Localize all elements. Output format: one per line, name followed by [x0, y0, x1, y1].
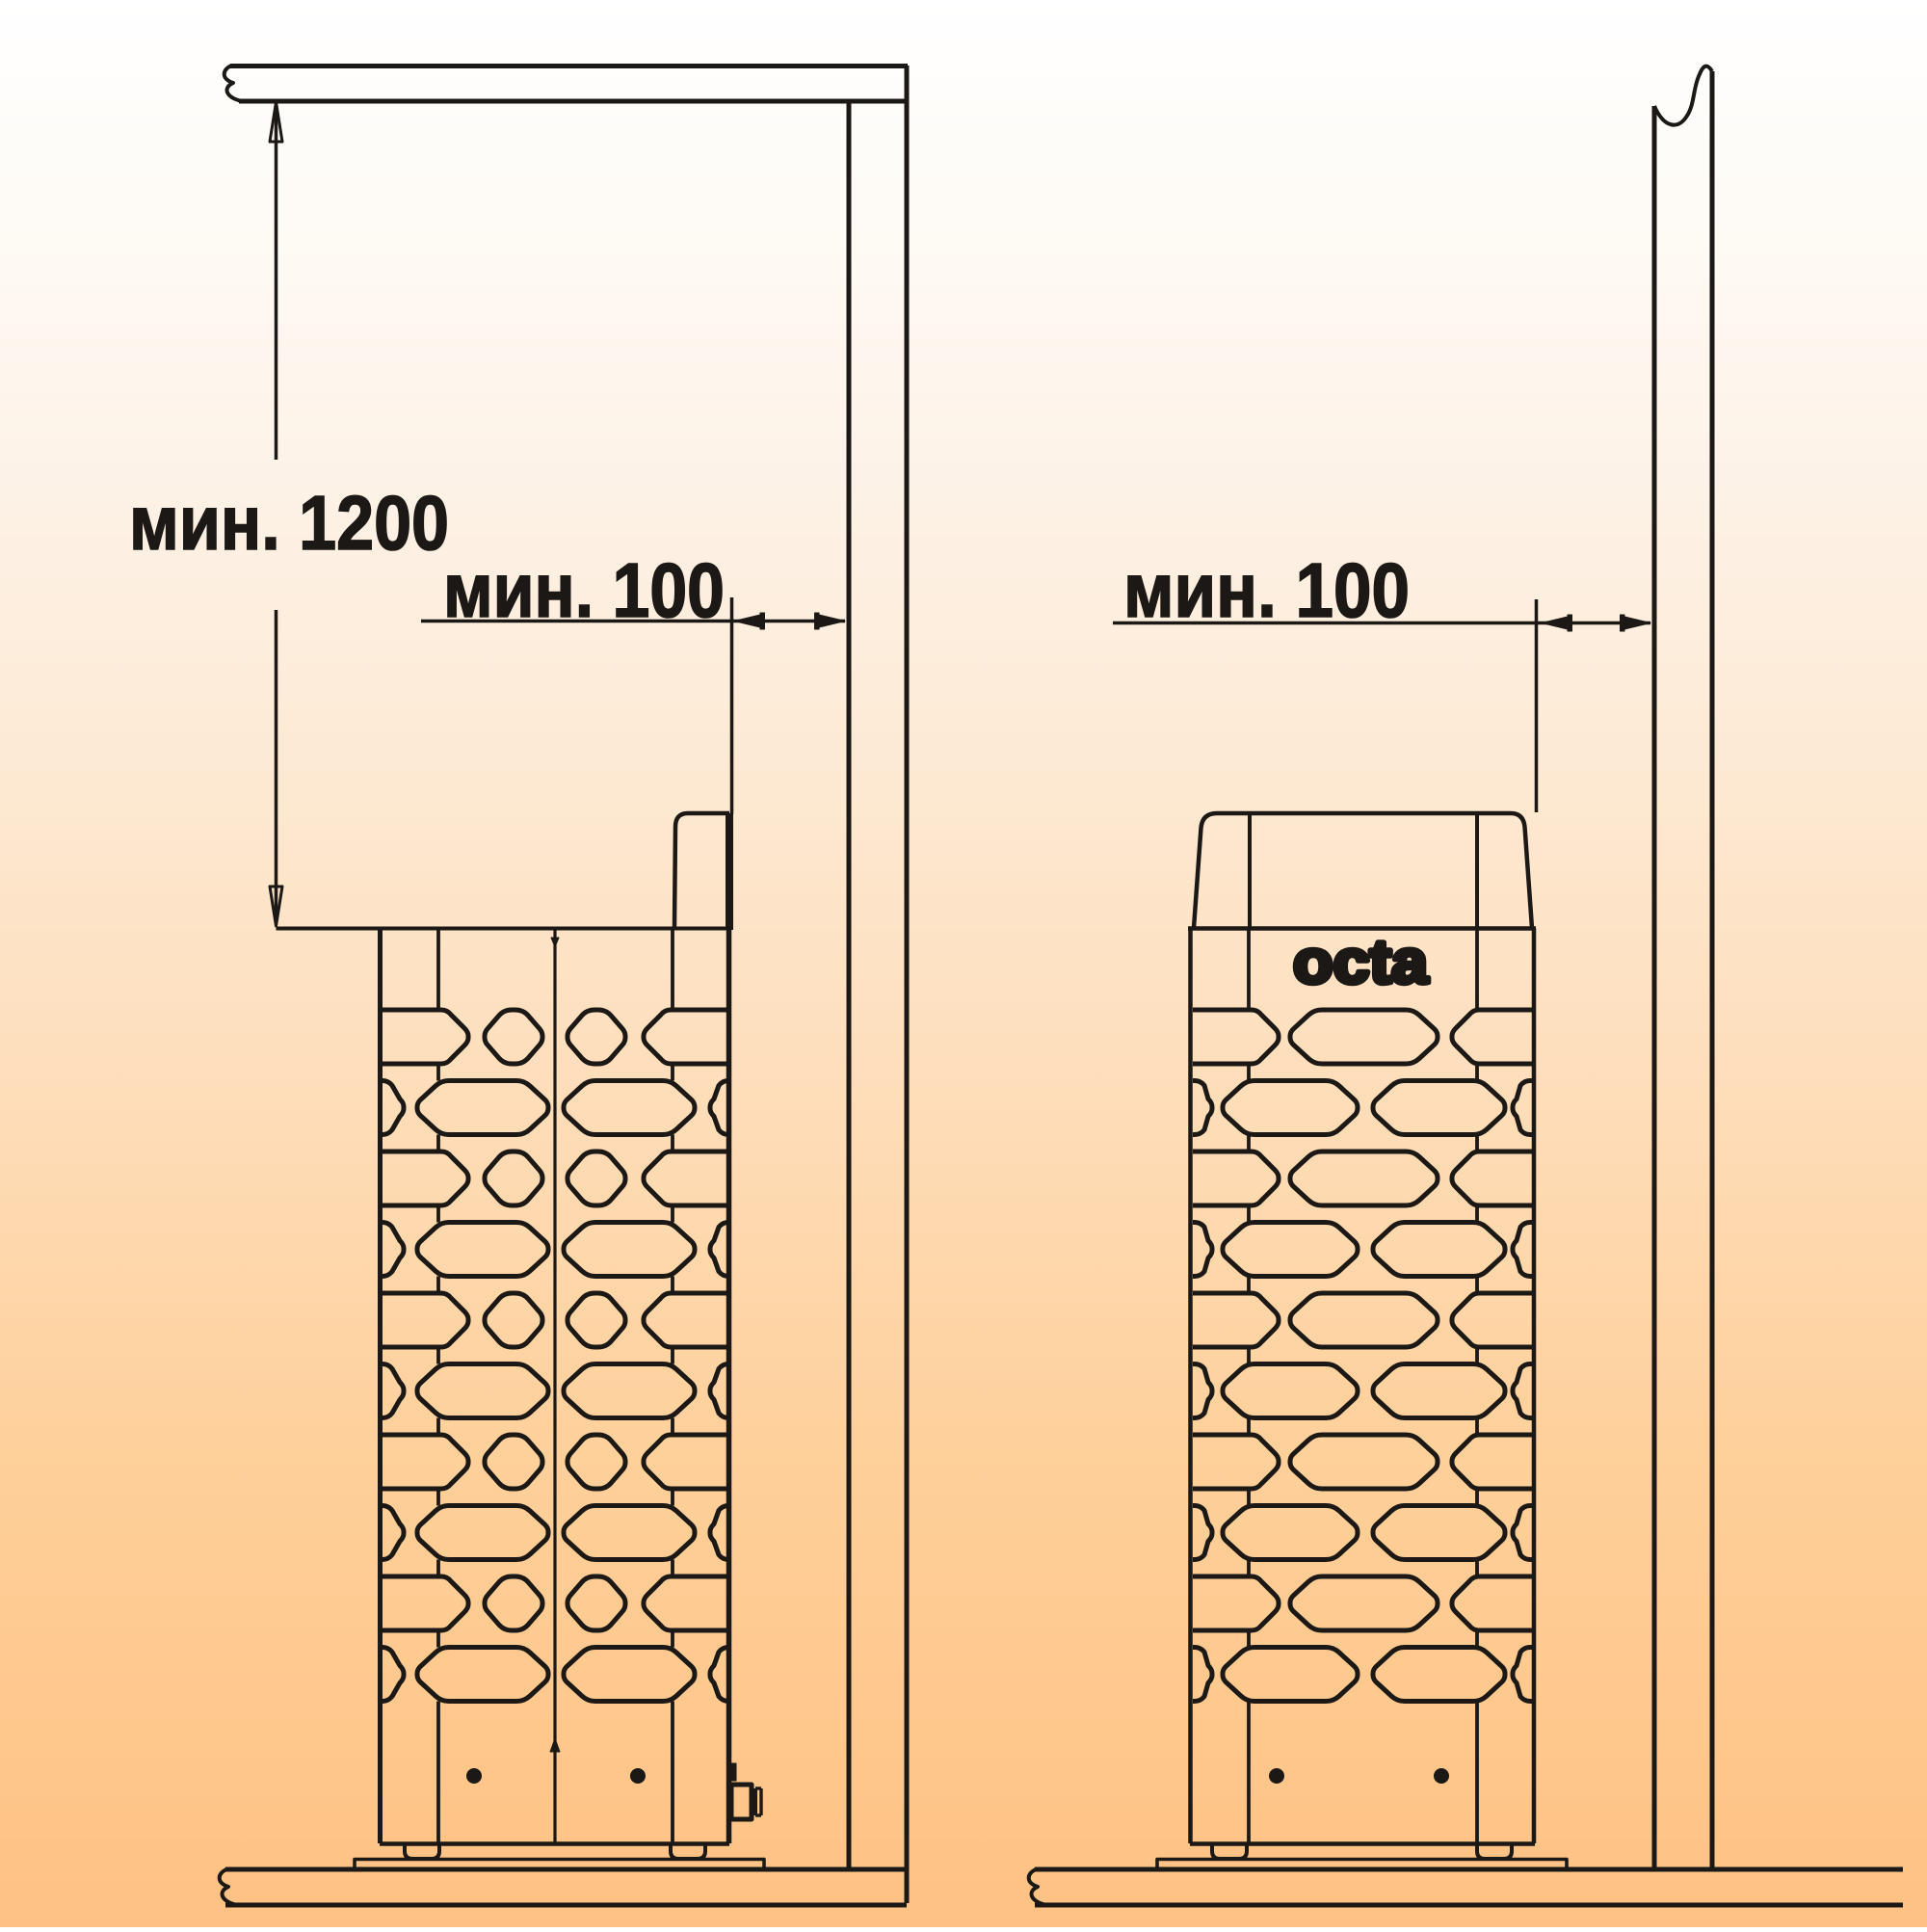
- svg-text:мин. 1200: мин. 1200: [129, 480, 449, 566]
- svg-text:octa: octa: [1293, 927, 1428, 996]
- svg-text:мин. 100: мин. 100: [1123, 547, 1410, 633]
- svg-text:мин. 100: мин. 100: [443, 547, 725, 633]
